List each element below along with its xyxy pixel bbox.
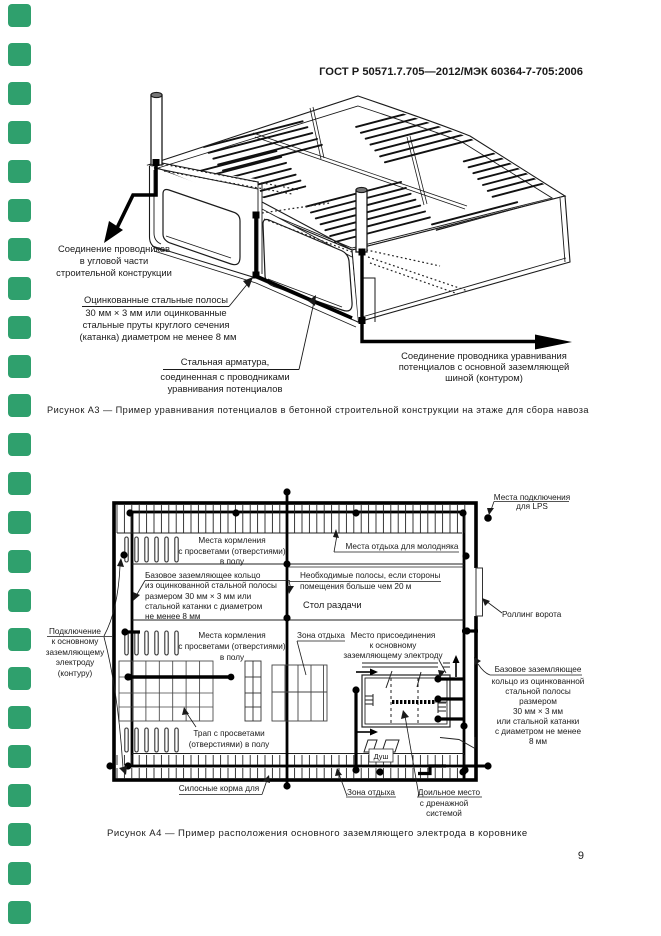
svg-text:шиной (контуром): шиной (контуром) — [445, 372, 523, 383]
svg-text:в полу: в полу — [220, 557, 245, 566]
svg-text:потенциалов с основной заземля: потенциалов с основной заземляющей — [399, 361, 570, 372]
svg-text:ГОСТ Р 50571.7.705—2012/МЭК 60: ГОСТ Р 50571.7.705—2012/МЭК 60364-7-705:… — [319, 66, 583, 78]
svg-text:в угловой части: в угловой части — [80, 255, 149, 266]
svg-text:к основному: к основному — [52, 637, 100, 646]
svg-text:системой: системой — [426, 809, 462, 818]
svg-text:заземляющему: заземляющему — [46, 648, 105, 657]
svg-text:стальной полосы: стальной полосы — [505, 687, 571, 696]
svg-text:Роллинг ворота: Роллинг ворота — [502, 610, 562, 619]
svg-text:с просветами (отверстиями): с просветами (отверстиями) — [178, 642, 285, 651]
svg-text:с просветами (отверстиями): с просветами (отверстиями) — [178, 547, 285, 556]
svg-text:с диаметром не менее: с диаметром не менее — [495, 727, 582, 736]
svg-text:Рисунок А4 — Пример расположе: Рисунок А4 — Пример расположения основно… — [107, 828, 528, 839]
svg-text:стальной катанки с диаметром: стальной катанки с диаметром — [145, 602, 263, 611]
svg-text:Душ: Душ — [374, 752, 389, 761]
svg-text:Базовое заземляющее кольцо: Базовое заземляющее кольцо — [145, 571, 261, 580]
svg-text:стальные пруты круглого сечени: стальные пруты круглого сечения — [83, 319, 230, 330]
svg-text:Зона отдыха: Зона отдыха — [347, 788, 395, 797]
svg-text:8 мм: 8 мм — [529, 737, 547, 746]
svg-text:Места подключения: Места подключения — [494, 493, 570, 502]
svg-text:Соединение проводника уравнива: Соединение проводника уравнивания — [401, 350, 567, 361]
svg-text:Соединение проводников: Соединение проводников — [58, 243, 170, 254]
svg-text:9: 9 — [578, 850, 584, 862]
svg-text:Силосные корма для: Силосные корма для — [179, 784, 259, 793]
svg-text:из оцинкованной стальной полос: из оцинкованной стальной полосы — [145, 581, 277, 590]
svg-text:кольцо из оцинкованной: кольцо из оцинкованной — [492, 677, 585, 686]
svg-text:Место присоединения: Место присоединения — [351, 631, 436, 640]
svg-text:Рисунок А3 — Пример уравниван: Рисунок А3 — Пример уравнивания потенциа… — [47, 405, 589, 415]
svg-text:заземляющему электроду: заземляющему электроду — [343, 651, 443, 660]
svg-text:Зона отдыха: Зона отдыха — [297, 631, 345, 640]
svg-text:30 мм × 3 мм или оцинкованные: 30 мм × 3 мм или оцинкованные — [85, 307, 226, 318]
svg-text:Стальная арматура,: Стальная арматура, — [181, 356, 270, 367]
svg-text:Стол раздачи: Стол раздачи — [303, 600, 362, 610]
svg-text:Подключение: Подключение — [49, 627, 101, 636]
svg-text:не менее 8 мм: не менее 8 мм — [145, 612, 201, 621]
svg-text:Места кормления: Места кормления — [198, 631, 265, 640]
svg-text:(отверстиями) в полу: (отверстиями) в полу — [189, 740, 270, 749]
svg-text:(контуру): (контуру) — [58, 669, 93, 678]
svg-text:уравнивания потенциалов: уравнивания потенциалов — [168, 383, 283, 394]
svg-text:с дренажной: с дренажной — [420, 799, 468, 808]
svg-text:в полу: в полу — [220, 653, 245, 662]
svg-text:Оцинкованные стальные полосы: Оцинкованные стальные полосы — [84, 294, 228, 305]
svg-text:для LPS: для LPS — [516, 502, 548, 511]
svg-text:Места отдыха для молодняка: Места отдыха для молодняка — [346, 542, 459, 551]
svg-text:размером 30 мм × 3 мм или: размером 30 мм × 3 мм или — [145, 592, 251, 601]
svg-text:размером: размером — [519, 697, 557, 706]
svg-text:Необходимые полосы, если сторо: Необходимые полосы, если стороны — [300, 571, 440, 580]
svg-text:Трап с просветами: Трап с просветами — [193, 729, 264, 738]
svg-text:Доильное место: Доильное место — [418, 788, 481, 797]
svg-text:30 мм × 3 мм: 30 мм × 3 мм — [513, 707, 563, 716]
svg-text:электроду: электроду — [56, 658, 95, 667]
svg-text:(катанка) диаметром не менее 8: (катанка) диаметром не менее 8 мм — [80, 331, 237, 342]
svg-text:Места кормления: Места кормления — [198, 536, 265, 545]
svg-text:к основному: к основному — [370, 641, 418, 650]
svg-text:Базовое заземляющее: Базовое заземляющее — [495, 665, 582, 674]
svg-text:соединенная с проводниками: соединенная с проводниками — [160, 371, 289, 382]
svg-text:строительной конструкции: строительной конструкции — [56, 267, 172, 278]
svg-text:помещения больше чем 20 м: помещения больше чем 20 м — [300, 582, 412, 591]
svg-text:или стальной катанки: или стальной катанки — [497, 717, 580, 726]
